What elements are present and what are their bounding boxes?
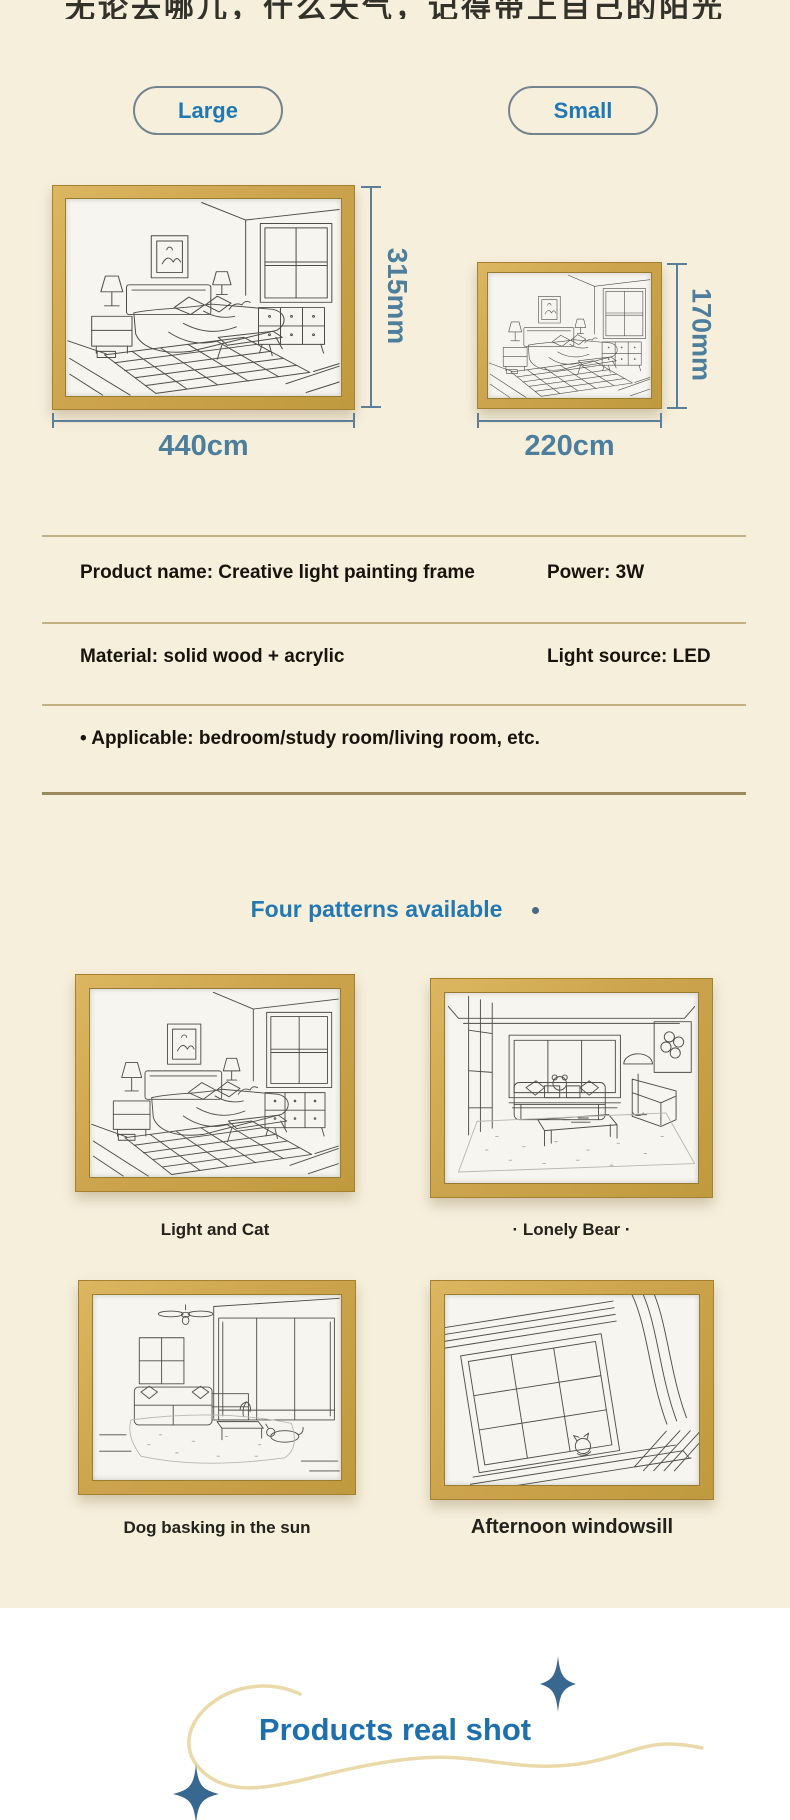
decorative-wave-and-stars (0, 1600, 790, 1820)
pattern-label-dog-basking: Dog basking in the sun (78, 1518, 356, 1538)
top-slogan: 无论去哪儿，什么天气，记得带上自己的阳光 (0, 0, 790, 19)
spec-divider-1 (42, 535, 746, 537)
pattern-artwork-light-and-cat (89, 988, 341, 1178)
large-width-dim-line (52, 420, 355, 422)
four-patterns-heading-text: Four patterns available (251, 896, 503, 922)
large-height-dim-cap-top (361, 186, 381, 188)
small-height-dim-line (676, 264, 678, 409)
spec-divider-4 (42, 792, 746, 795)
spec-divider-3 (42, 704, 746, 706)
pattern-artwork-afternoon-windowsill (444, 1294, 700, 1486)
large-frame-image (52, 185, 355, 410)
large-width-dim-label: 440cm (52, 430, 355, 463)
size-option-large-button[interactable]: Large (133, 86, 283, 135)
large-height-dim-cap-bottom (361, 406, 381, 408)
large-height-dim-line (370, 187, 372, 408)
small-frame-image (477, 262, 662, 409)
large-width-dim-cap-right (353, 413, 355, 428)
pattern-image-light-and-cat (75, 974, 355, 1192)
small-width-dim-label: 220cm (477, 430, 662, 463)
spec-applicable: • Applicable: bedroom/study room/living … (80, 728, 540, 750)
pattern-artwork-dog-basking (92, 1294, 342, 1481)
size-option-small-label: Small (554, 98, 613, 124)
large-width-dim-cap-left (52, 413, 54, 428)
top-slogan-text: 无论去哪儿，什么天气，记得带上自己的阳光 (0, 0, 790, 19)
spec-product-name: Product name: Creative light painting fr… (80, 562, 475, 584)
bedroom-line-art (66, 199, 341, 396)
small-height-dim-cap-top (667, 263, 687, 265)
real-shot-title: Products real shot (0, 1712, 790, 1748)
pattern-image-dog-basking (78, 1280, 356, 1495)
large-frame-artwork (65, 198, 342, 397)
small-height-dim-label: 170mm (686, 265, 717, 405)
sparkle-icon (540, 1656, 576, 1712)
bedroom-line-art (488, 273, 651, 398)
size-option-small-button[interactable]: Small (508, 86, 658, 135)
four-patterns-heading: Four patterns available (0, 896, 790, 923)
pattern-image-afternoon-windowsill (430, 1280, 714, 1500)
pattern-label-lonely-bear: · Lonely Bear · (430, 1220, 713, 1240)
spec-material: Material: solid wood + acrylic (80, 646, 345, 668)
small-frame-artwork (487, 272, 652, 399)
pattern-image-lonely-bear (430, 978, 713, 1198)
living-room-line-art (445, 993, 698, 1183)
sparkle-icon (173, 1764, 219, 1820)
windowsill-line-art (445, 1295, 699, 1485)
large-height-dim-label: 315mm (381, 226, 413, 366)
heading-dot-icon (532, 907, 539, 914)
spec-divider-2 (42, 622, 746, 624)
small-width-dim-cap-left (477, 413, 479, 428)
small-width-dim-cap-right (660, 413, 662, 428)
product-detail-page: 无论去哪儿，什么天气，记得带上自己的阳光 Large Small (0, 0, 790, 1820)
size-option-large-label: Large (178, 98, 238, 124)
spec-light-source: Light source: LED (547, 646, 711, 668)
small-height-dim-cap-bottom (667, 407, 687, 409)
bedroom-line-art (90, 989, 340, 1177)
pattern-label-afternoon-windowsill: Afternoon windowsill (430, 1516, 714, 1539)
spec-power: Power: 3W (547, 562, 644, 584)
small-width-dim-line (477, 420, 662, 422)
dog-room-line-art (93, 1295, 341, 1480)
pattern-label-light-and-cat: Light and Cat (75, 1220, 355, 1240)
pattern-artwork-lonely-bear (444, 992, 699, 1184)
